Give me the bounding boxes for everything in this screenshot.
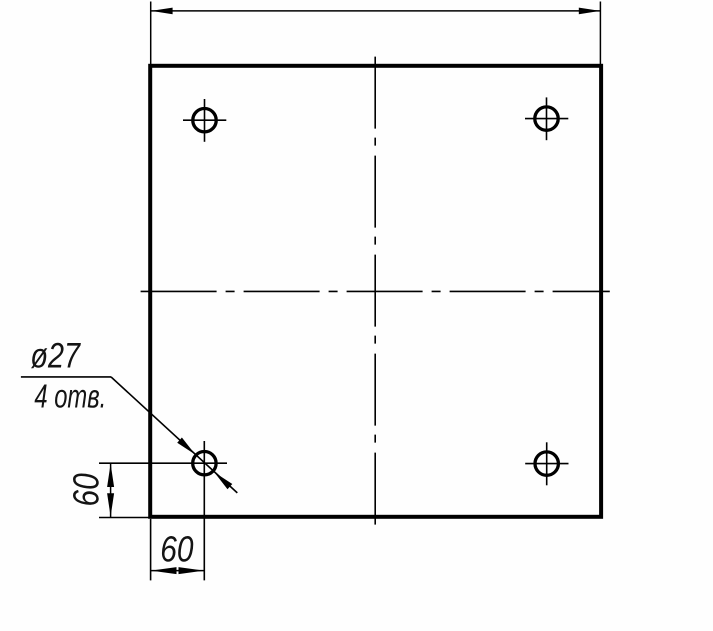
svg-text:60: 60 xyxy=(160,530,194,570)
svg-text:4 отв.: 4 отв. xyxy=(34,379,106,416)
svg-text:ø27: ø27 xyxy=(30,336,81,375)
svg-text:60: 60 xyxy=(67,473,107,507)
